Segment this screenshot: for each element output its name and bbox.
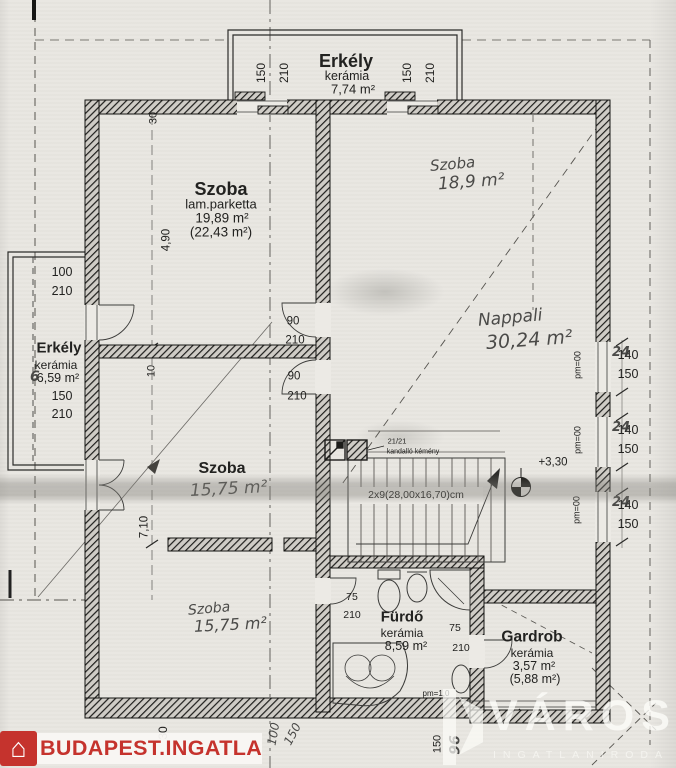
- hand-correction-rwin3: 24: [612, 496, 630, 509]
- chimney-name-label: kandalló kémény: [387, 449, 440, 456]
- dim-rwin2-height: 150: [618, 443, 639, 456]
- level-symbol: [512, 468, 531, 497]
- dim-left-door2-width: 150: [52, 390, 73, 403]
- dim-mid-door2-height: 210: [287, 391, 306, 403]
- dim-rwin1-height: 150: [618, 368, 639, 381]
- room-material-balcony-top: kerámia: [325, 70, 369, 83]
- parapet-rwin2: pm=00: [574, 426, 583, 454]
- room-area-nw: 19,89 m²: [195, 211, 248, 225]
- dim-left-door1-width: 100: [52, 266, 73, 279]
- dim-10: 10: [147, 365, 158, 377]
- room-material-balcony-left: kerámia: [35, 359, 78, 371]
- room-area-balcony-left: 6,59 m²: [37, 372, 79, 385]
- floorplan-drawing: [0, 0, 676, 768]
- dim-bath-door-width: 75: [346, 592, 358, 603]
- dim-rwin3-height: 150: [618, 518, 639, 531]
- room-material-nw: lam.parketta: [185, 198, 257, 211]
- dim-710: 7,10: [139, 516, 151, 538]
- dim-left-door2-height: 210: [52, 408, 73, 421]
- floorplan-page: Erkély kerámia 7,74 m² 150 210 150 210 S…: [0, 0, 676, 768]
- room-label-balcony-top: Erkély: [319, 52, 373, 70]
- dim-wall-30: 30: [149, 112, 160, 124]
- parapet-rwin3: pm=00: [573, 496, 582, 524]
- dim-wardrobe-door-height: 210: [452, 643, 470, 654]
- dim-left-door1-height: 210: [52, 285, 73, 298]
- hand-correction-rwin1: 24: [612, 346, 630, 359]
- dim-mid-door2-width: 90: [288, 371, 301, 383]
- hand-dim-bottom-96: 96: [449, 735, 463, 754]
- room-label-balcony-left: Erkély: [36, 341, 81, 356]
- room-label-wardrobe: Gardrob: [501, 629, 562, 645]
- room-material-bath: kerámia: [381, 627, 424, 639]
- hand-room-area-sw: 15,75 m²: [194, 615, 268, 635]
- dim-mid-door1-width: 90: [287, 316, 300, 328]
- dim-bottom-150: 150: [433, 735, 444, 753]
- watermark-strip: BUDAPEST.INGATLAN.HU: [37, 733, 262, 764]
- room-label-nw: Szoba: [194, 180, 247, 198]
- level-mark-label: +3,30: [538, 457, 567, 469]
- dim-top-door1-width: 150: [255, 63, 267, 83]
- stairs-label: 2x9(28,00x16,70)cm: [365, 489, 467, 502]
- room-area-wardrobe: 3,57 m²: [513, 660, 555, 673]
- room-area-bath: 8,59 m²: [385, 640, 427, 653]
- parapet-bottom: pm=1,0: [423, 690, 450, 698]
- dim-bath-door-height: 210: [343, 610, 361, 621]
- hand-correction-rwin2: 24: [612, 421, 630, 434]
- portal-watermark: ⌂ BUDAPEST.INGATLAN.HU: [0, 731, 262, 766]
- watermark-house-icon: ⌂: [0, 731, 37, 766]
- room-material-wardrobe: kerámia: [511, 647, 554, 659]
- room-label-bath: Fürdő: [381, 610, 424, 625]
- dim-top-door1-height: 210: [278, 63, 290, 83]
- hand-room-area-ne: 18,9 m²: [437, 172, 505, 194]
- dim-top-door2-height: 210: [424, 63, 436, 83]
- hand-digit-balcony-left: 6: [30, 370, 40, 384]
- chimney-size-label: 21/21: [388, 437, 407, 445]
- room-area-alt-wardrobe: (5,88 m²): [510, 673, 561, 686]
- chimney-flues: [325, 440, 384, 460]
- room-area-alt-nw: (22,43 m²): [190, 225, 252, 239]
- dim-mid-door1-height: 210: [285, 335, 304, 347]
- dim-wardrobe-door-width: 75: [449, 623, 461, 634]
- hand-dim-bottom-100: 100: [266, 722, 282, 747]
- dim-top-door2-width: 150: [401, 63, 413, 83]
- dim-490: 4,90: [161, 229, 173, 251]
- room-label-w: Szoba: [198, 461, 245, 477]
- room-area-balcony-top: 7,74 m²: [331, 83, 375, 96]
- hand-room-area-w: 15,75 m²: [190, 479, 268, 500]
- watermark-text: BUDAPEST.INGATLAN.HU: [37, 733, 262, 764]
- parapet-rwin1: pm=00: [574, 351, 583, 379]
